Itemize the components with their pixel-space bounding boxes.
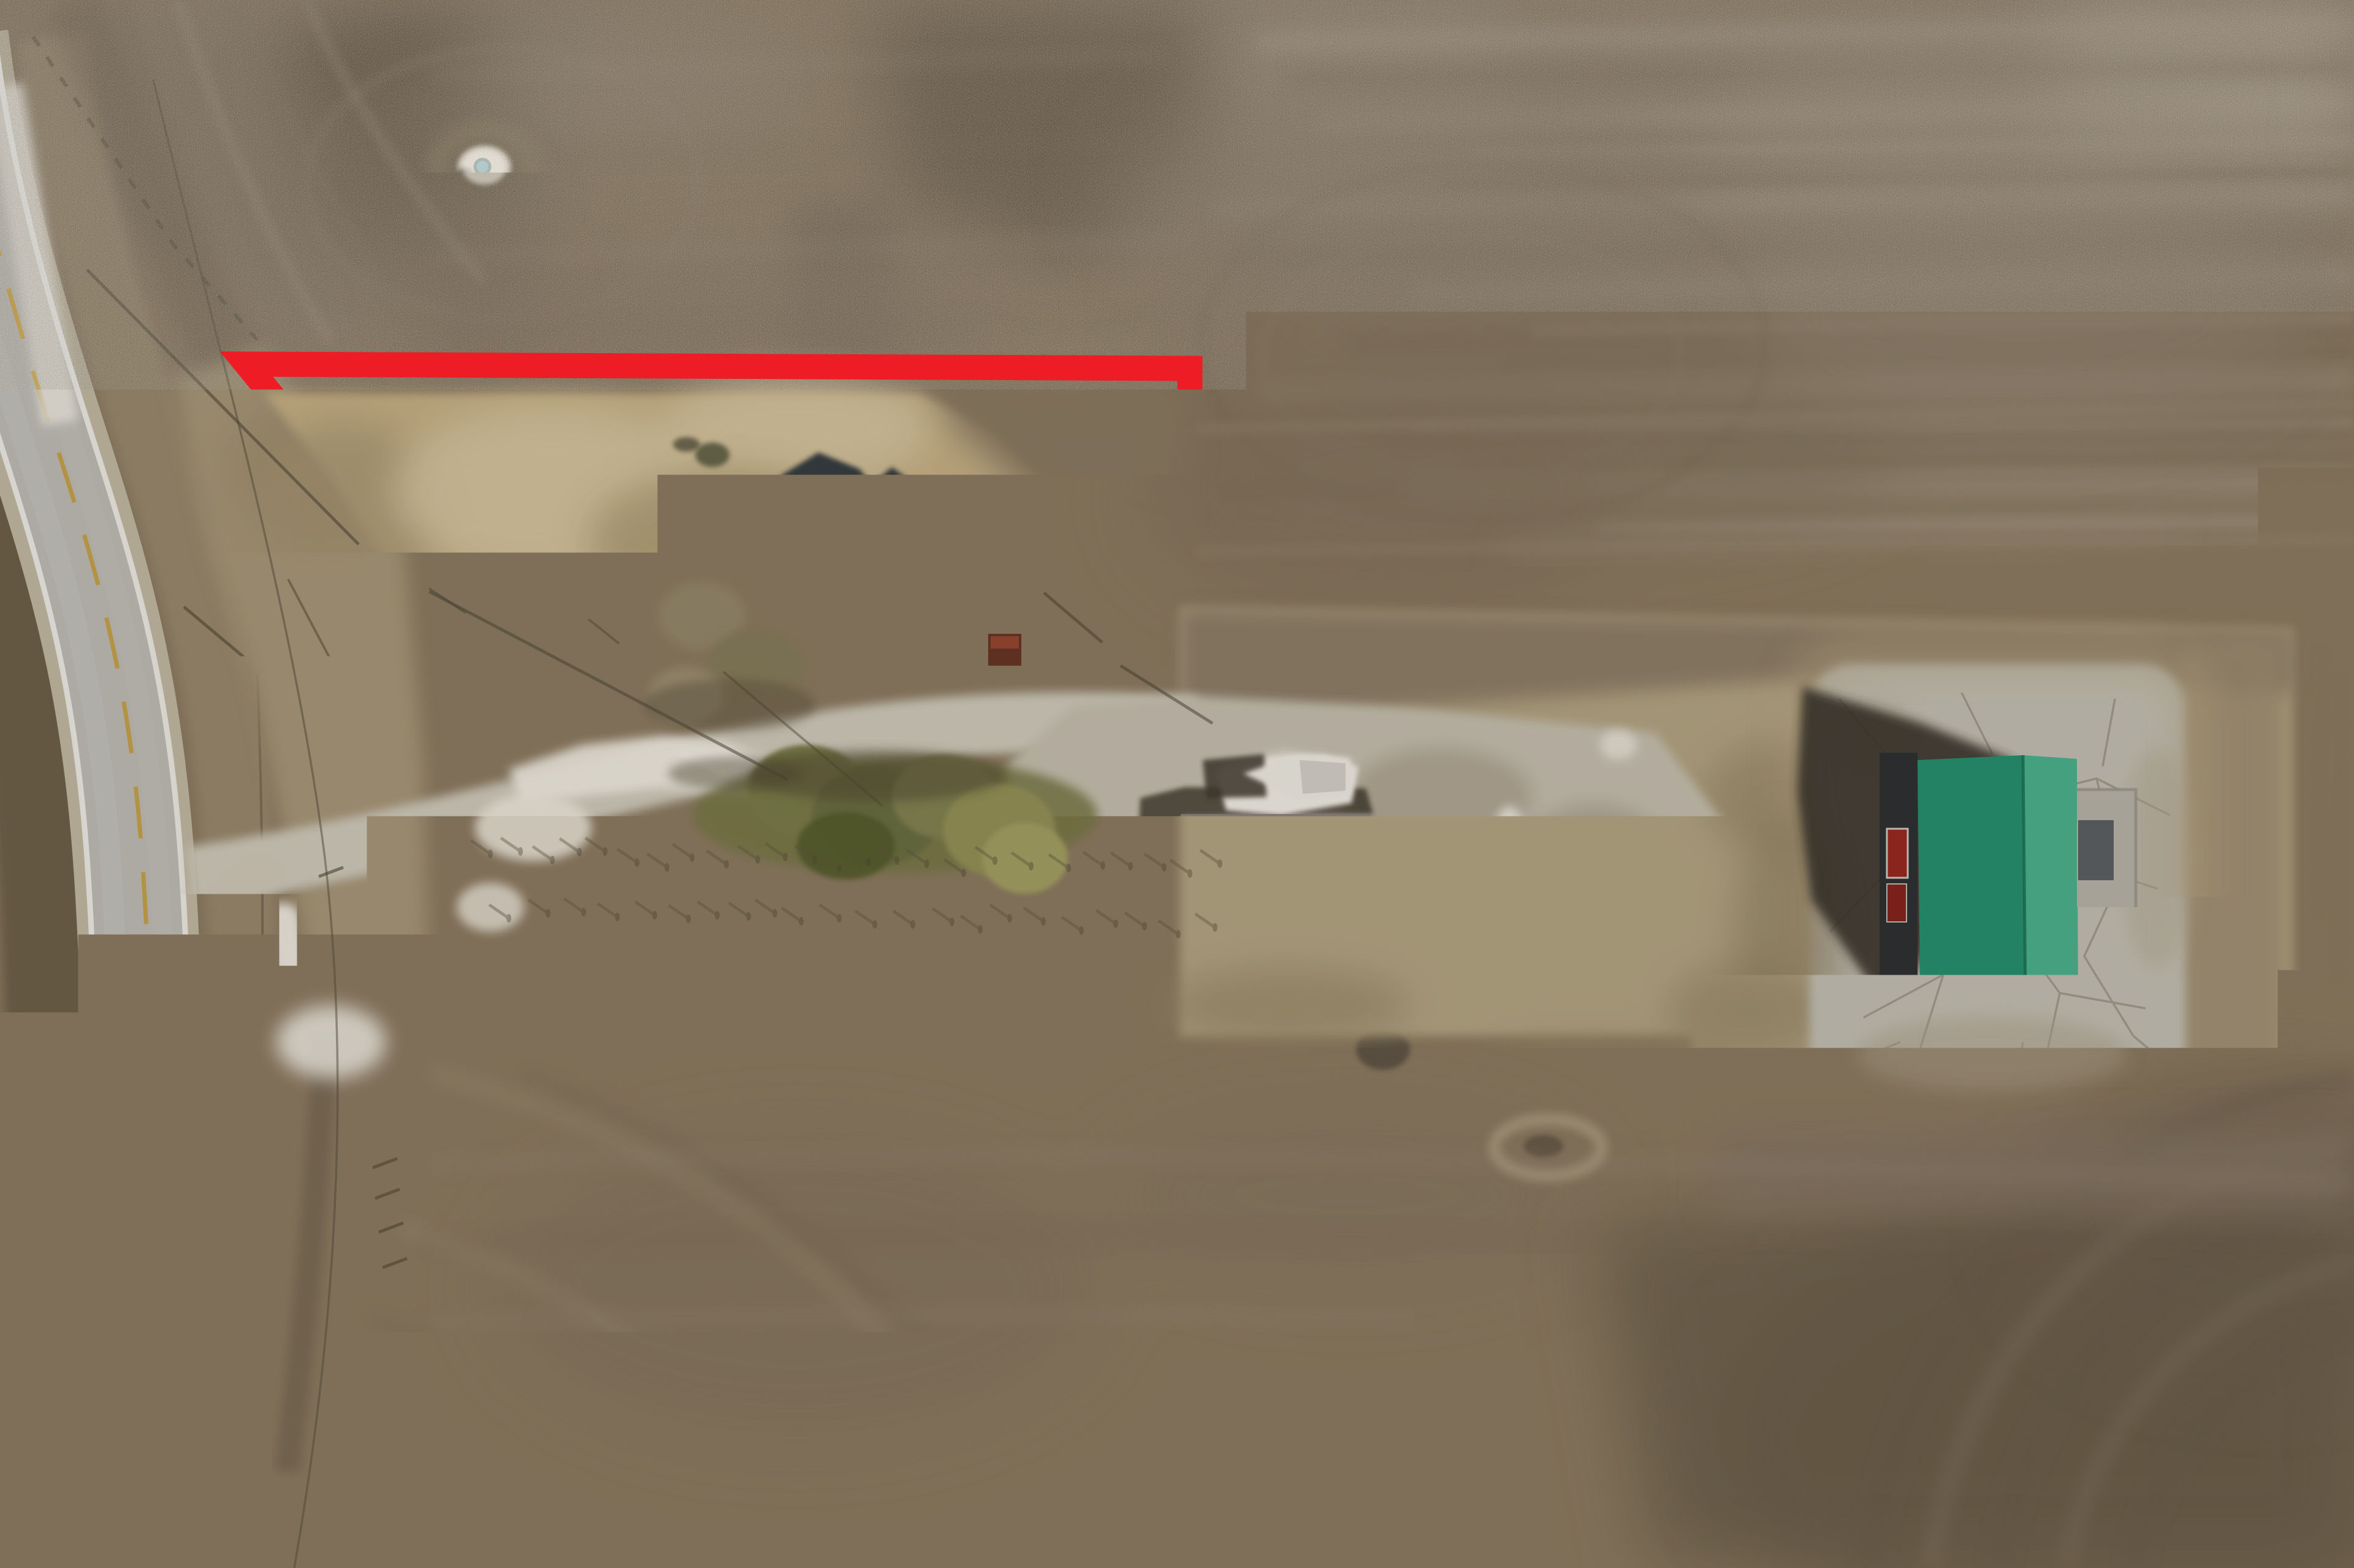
svg-text:BOUNDARY LINES ARE FOR ILLUSTR: BOUNDARY LINES ARE FOR ILLUSTRATION PURP… bbox=[1564, 1520, 2336, 1554]
svg-text:MAZZEFLYNN REAL ESTATE LIMITED: MAZZEFLYNN REAL ESTATE LIMITED, Brokerag… bbox=[705, 1461, 1649, 1506]
